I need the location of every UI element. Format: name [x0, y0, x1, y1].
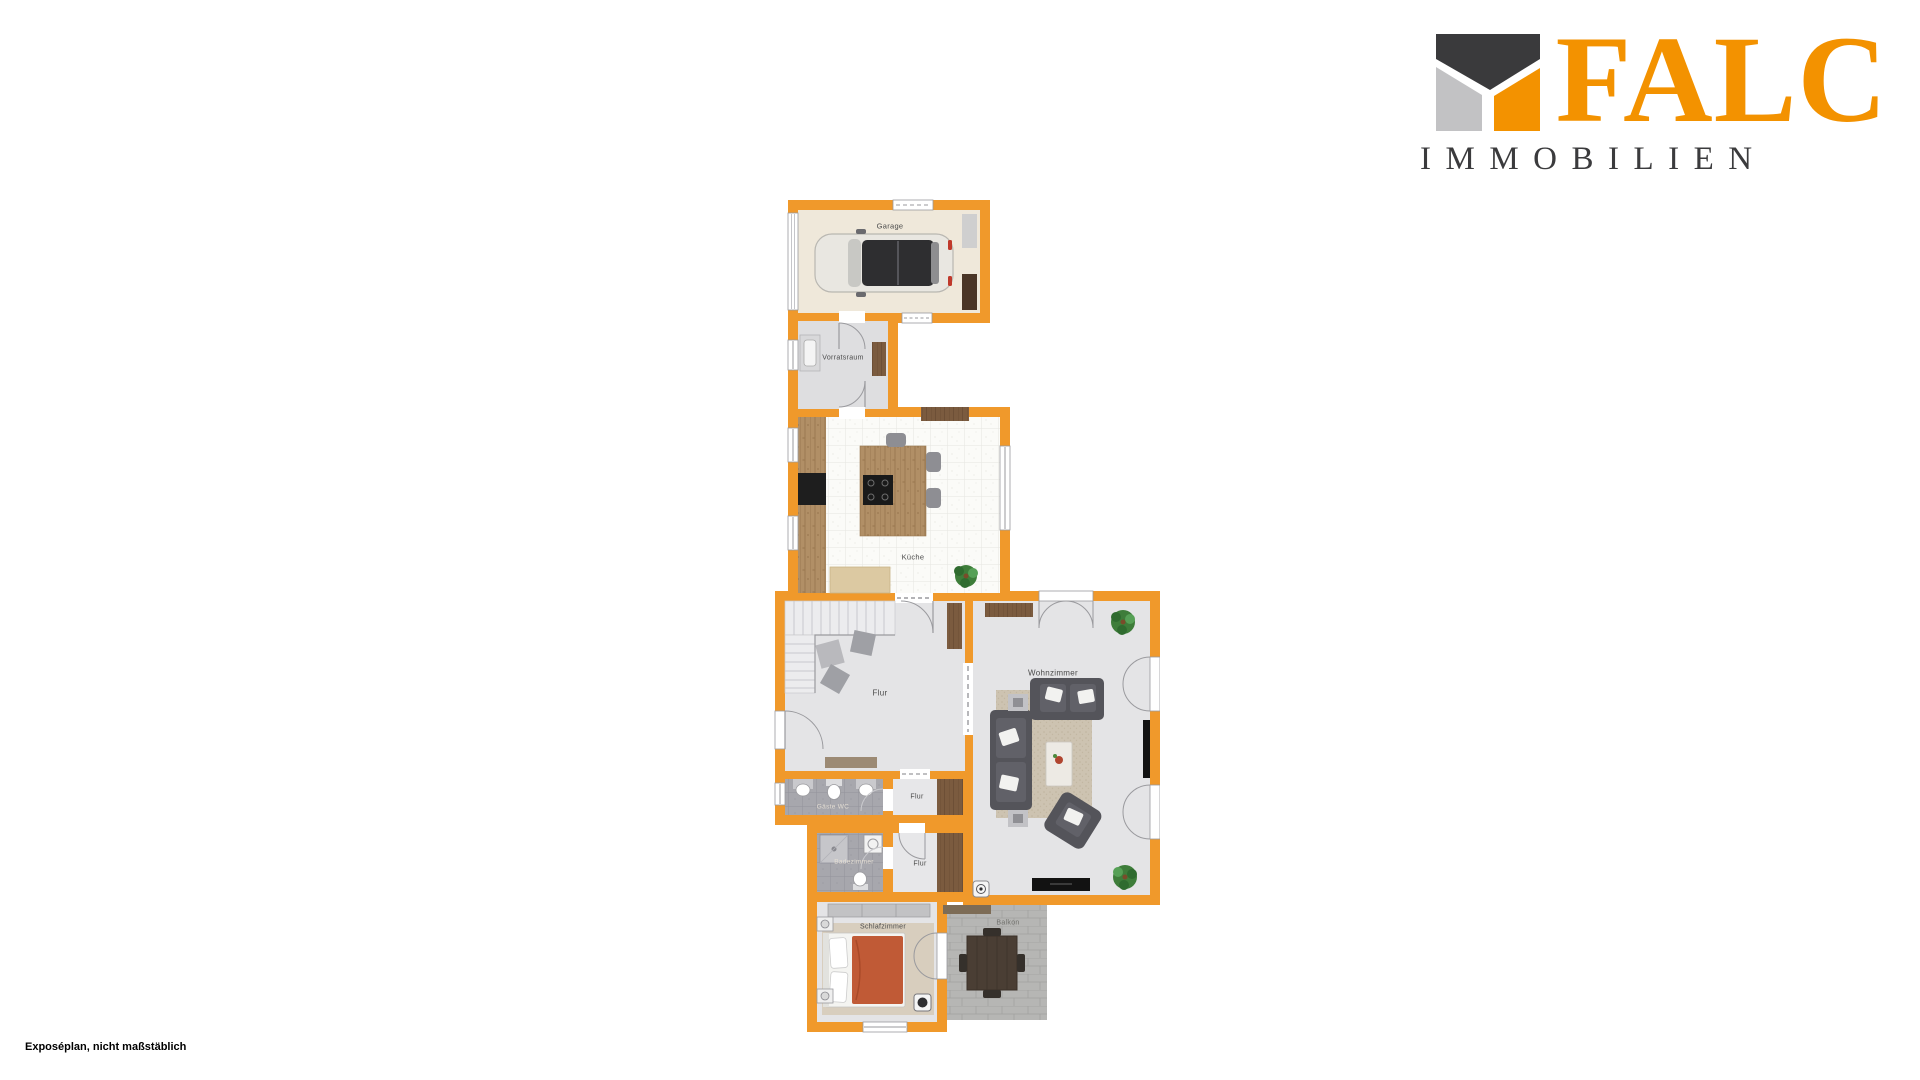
room-label-badezimmer: Badezimmer	[834, 859, 873, 866]
falc-logo-mark-icon	[1436, 34, 1540, 131]
room-label-kueche: Küche	[902, 553, 925, 562]
room-label-balkon: Balkon	[996, 920, 1019, 927]
room-label-schlafzimmer: Schlafzimmer	[860, 924, 906, 931]
room-label-garage: Garage	[877, 222, 904, 231]
brand-name: FALC	[1556, 28, 1888, 132]
room-label-flur-klein-2: Flur	[913, 861, 926, 868]
room-label-flur-klein-1: Flur	[910, 794, 923, 801]
speaker	[914, 994, 931, 1011]
room-label-vorratsraum: Vorratsraum	[822, 355, 863, 362]
room-label-flur: Flur	[873, 689, 888, 698]
bed	[823, 933, 905, 1007]
page: { "caption": "Exposéplan, nicht maßstäbl…	[0, 0, 1920, 1080]
floorplan-drawing	[760, 190, 1160, 1050]
speaker	[973, 881, 989, 897]
room-label-gaeste-wc: Gäste WC	[817, 804, 849, 811]
falc-logo: FALC IMMOBILIEN	[1418, 28, 1888, 178]
room-label-wohnzimmer: Wohnzimmer	[1028, 669, 1078, 678]
wall-tv	[1143, 720, 1150, 778]
floorplan: Garage Vorratsraum Küche Flur Wohnzimmer…	[760, 190, 1160, 1050]
car	[815, 229, 953, 297]
plan-disclaimer: Exposéplan, nicht maßstäblich	[25, 1041, 186, 1053]
